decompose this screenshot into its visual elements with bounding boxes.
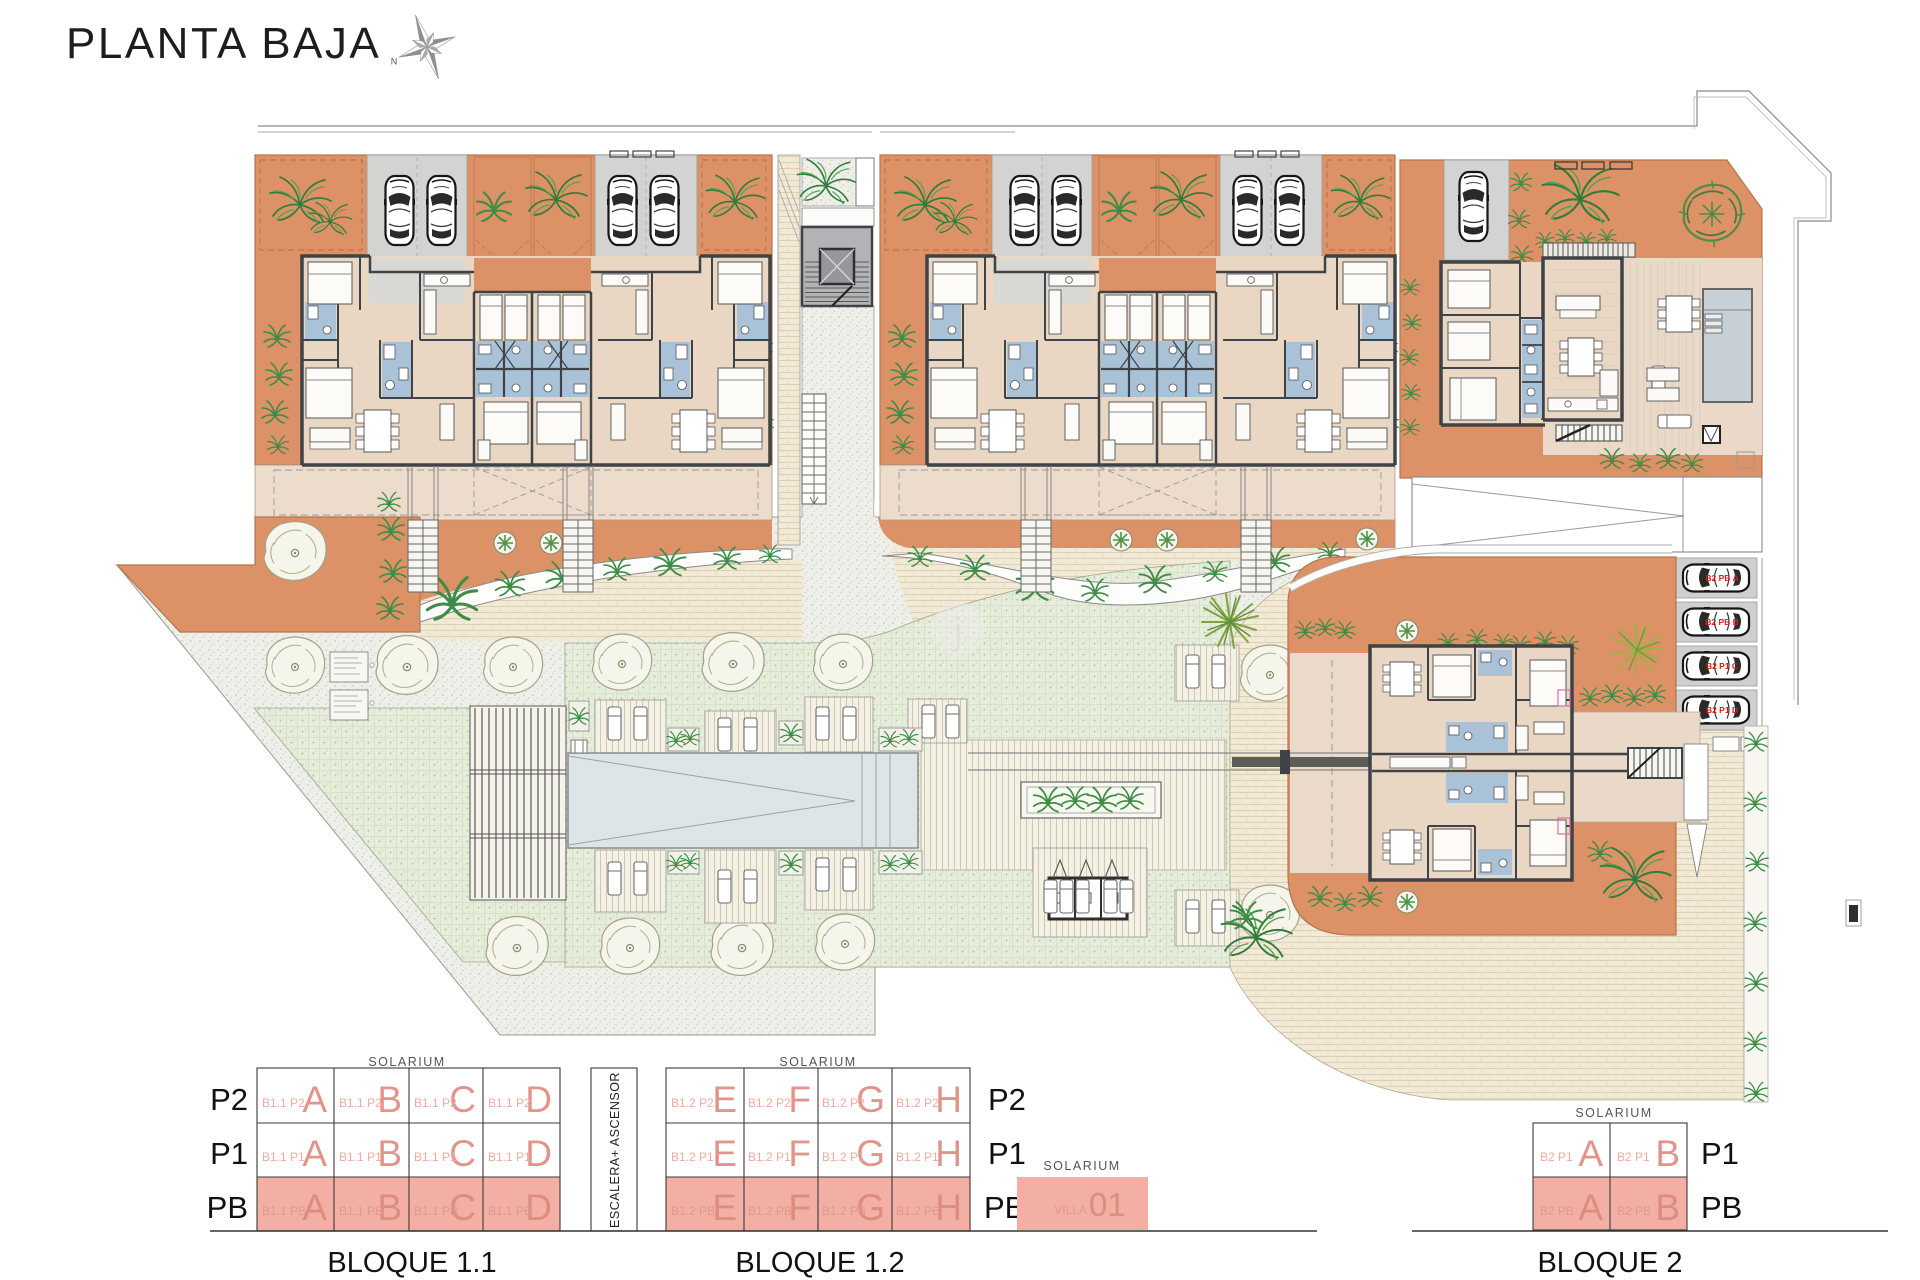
svg-text:B1.1 P2: B1.1 P2 <box>339 1096 382 1110</box>
svg-text:B1.1 P1: B1.1 P1 <box>414 1150 457 1164</box>
svg-text:B2 P1 C: B2 P1 C <box>1706 661 1738 671</box>
svg-text:j: j <box>950 607 963 652</box>
svg-text:B1.2 PB: B1.2 PB <box>671 1204 715 1218</box>
svg-text:B1.1 PB: B1.1 PB <box>339 1204 383 1218</box>
svg-text:B1.1 PB: B1.1 PB <box>488 1204 532 1218</box>
svg-text:E: E <box>712 1133 737 1174</box>
svg-text:BLOQUE 1.2: BLOQUE 1.2 <box>735 1247 904 1279</box>
svg-text:P1: P1 <box>210 1136 248 1171</box>
svg-text:B1.1 P1: B1.1 P1 <box>262 1150 305 1164</box>
svg-text:B1.2 P1: B1.2 P1 <box>822 1150 865 1164</box>
svg-text:F: F <box>788 1079 811 1120</box>
svg-text:ESCALERA+ ASCENSOR: ESCALERA+ ASCENSOR <box>608 1072 622 1228</box>
svg-text:B1.2 P2: B1.2 P2 <box>748 1096 791 1110</box>
svg-text:B1.2 P2: B1.2 P2 <box>896 1096 939 1110</box>
svg-text:B1.1 P1: B1.1 P1 <box>488 1150 531 1164</box>
svg-text:P1: P1 <box>988 1136 1026 1171</box>
svg-text:B1.1 P2: B1.1 P2 <box>414 1096 457 1110</box>
svg-text:H: H <box>935 1133 962 1174</box>
svg-text:VILLA: VILLA <box>1054 1203 1087 1217</box>
svg-text:H: H <box>935 1079 962 1120</box>
svg-text:B1.1 PB: B1.1 PB <box>262 1204 306 1218</box>
svg-text:B2 PB: B2 PB <box>1540 1204 1574 1218</box>
svg-text:SOLARIUM: SOLARIUM <box>368 1055 445 1069</box>
svg-text:B1.2 P2: B1.2 P2 <box>822 1096 865 1110</box>
svg-text:BLOQUE 2: BLOQUE 2 <box>1537 1247 1682 1279</box>
svg-text:B: B <box>1655 1187 1680 1228</box>
svg-text:B2 P1 D: B2 P1 D <box>1706 705 1738 715</box>
svg-text:N: N <box>391 56 398 66</box>
svg-text:P2: P2 <box>210 1082 248 1117</box>
svg-text:B2 PB: B2 PB <box>1617 1204 1651 1218</box>
svg-text:BLOQUE 1.1: BLOQUE 1.1 <box>327 1247 496 1279</box>
svg-text:A: A <box>302 1187 327 1228</box>
svg-text:B2 PB B: B2 PB B <box>1705 617 1739 627</box>
svg-text:A: A <box>302 1133 327 1174</box>
svg-text:B1.1 P2: B1.1 P2 <box>488 1096 531 1110</box>
svg-text:B1.1 P1: B1.1 P1 <box>339 1150 382 1164</box>
svg-text:F: F <box>788 1133 811 1174</box>
svg-text:B2 PB A: B2 PB A <box>1705 573 1738 583</box>
svg-text:A: A <box>1578 1187 1603 1228</box>
svg-text:E: E <box>712 1187 737 1228</box>
svg-text:B2 P1: B2 P1 <box>1540 1150 1573 1164</box>
svg-text:B1.2 P1: B1.2 P1 <box>896 1150 939 1164</box>
svg-text:B1.1 P2: B1.1 P2 <box>262 1096 305 1110</box>
svg-text:SOLARIUM: SOLARIUM <box>779 1055 856 1069</box>
svg-text:B1.2 P1: B1.2 P1 <box>671 1150 714 1164</box>
svg-text:PB: PB <box>1701 1190 1742 1225</box>
svg-text:B2 P1: B2 P1 <box>1617 1150 1650 1164</box>
svg-text:01: 01 <box>1089 1186 1126 1223</box>
svg-text:A: A <box>1578 1133 1603 1174</box>
svg-text:B1.2 PB: B1.2 PB <box>822 1204 866 1218</box>
svg-text:B1.2 P1: B1.2 P1 <box>748 1150 791 1164</box>
svg-text:SOLARIUM: SOLARIUM <box>1575 1106 1652 1120</box>
svg-text:B: B <box>1655 1133 1680 1174</box>
svg-text:A: A <box>302 1079 327 1120</box>
svg-text:SOLARIUM: SOLARIUM <box>1043 1159 1120 1173</box>
svg-text:B1.2 PB: B1.2 PB <box>896 1204 940 1218</box>
svg-text:B1.2 P2: B1.2 P2 <box>671 1096 714 1110</box>
svg-text:PLANTA BAJA: PLANTA BAJA <box>66 19 381 68</box>
svg-text:P2: P2 <box>988 1082 1026 1117</box>
svg-text:B1.2 PB: B1.2 PB <box>748 1204 792 1218</box>
svg-text:P1: P1 <box>1701 1136 1739 1171</box>
svg-text:E: E <box>712 1079 737 1120</box>
svg-text:B1.1 PB: B1.1 PB <box>414 1204 458 1218</box>
svg-text:PB: PB <box>207 1190 248 1225</box>
